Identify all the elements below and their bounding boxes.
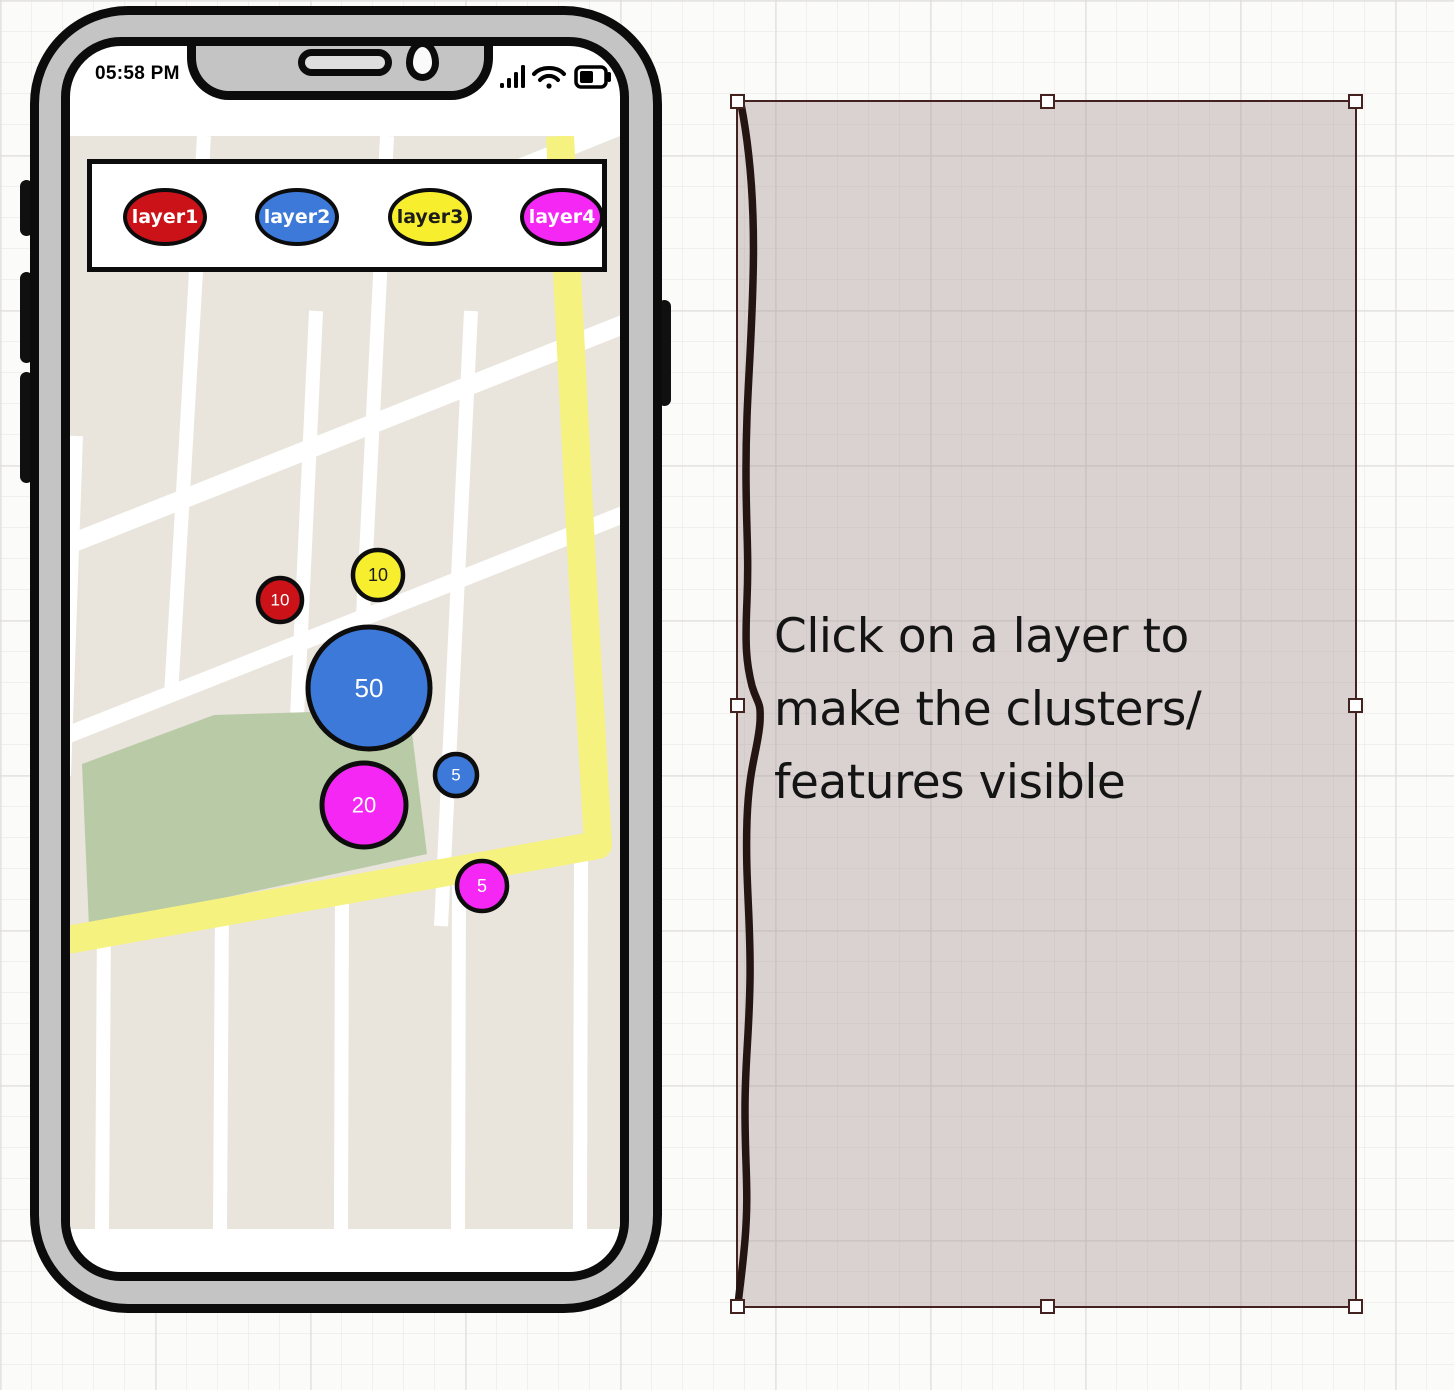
cluster-marker-blue-5[interactable]: 5	[435, 754, 477, 796]
layer2-button[interactable]: layer2	[255, 188, 339, 246]
wifi-icon	[534, 68, 564, 89]
annotation-text: Click on a layer to make the clusters/ f…	[774, 600, 1349, 819]
status-bar-icons	[500, 59, 612, 93]
cluster-value: 5	[477, 876, 487, 896]
cluster-marker-blue-50[interactable]: 50	[308, 627, 430, 749]
annotation-line-3: features visible	[774, 746, 1349, 819]
cellular-signal-icon	[500, 65, 525, 88]
selection-handle-middle-left[interactable]	[730, 698, 745, 713]
cluster-value: 50	[355, 673, 384, 703]
map-canvas: 10 10 50 5 20 5	[70, 136, 620, 1229]
layer4-button[interactable]: layer4	[520, 188, 604, 246]
selection-handle-top-middle[interactable]	[1040, 94, 1055, 109]
selection-handle-top-left[interactable]	[730, 94, 745, 109]
status-bar-time: 05:58 PM	[95, 63, 180, 85]
phone-screen: 05:58 PM	[61, 37, 629, 1281]
annotation-line-1: Click on a layer to	[774, 600, 1349, 673]
cluster-marker-magenta-20[interactable]: 20	[322, 763, 406, 847]
annotation-panel[interactable]: Click on a layer to make the clusters/ f…	[736, 100, 1357, 1308]
annotation-line-2: make the clusters/	[774, 673, 1349, 746]
layer-selector-bar: layer1 layer2 layer3 layer4	[87, 159, 607, 272]
cluster-marker-yellow-10[interactable]: 10	[353, 550, 403, 600]
selection-handle-middle-right[interactable]	[1348, 698, 1363, 713]
cluster-marker-magenta-5[interactable]: 5	[457, 861, 507, 911]
phone-frame: 05:58 PM	[30, 6, 662, 1313]
layer1-button[interactable]: layer1	[123, 188, 207, 246]
phone-camera	[406, 40, 439, 81]
phone-speaker	[298, 49, 392, 76]
cluster-marker-red-10[interactable]: 10	[258, 578, 302, 622]
cluster-value: 10	[368, 565, 388, 585]
cluster-value: 10	[271, 591, 290, 610]
selection-handle-top-right[interactable]	[1348, 94, 1363, 109]
selection-handle-bottom-middle[interactable]	[1040, 1299, 1055, 1314]
cluster-value: 20	[352, 793, 376, 818]
battery-icon	[576, 67, 611, 87]
selection-handle-bottom-right[interactable]	[1348, 1299, 1363, 1314]
selection-handle-bottom-left[interactable]	[730, 1299, 745, 1314]
layer3-button[interactable]: layer3	[388, 188, 472, 246]
design-canvas: { "device": { "time": "05:58 PM", "statu…	[0, 0, 1454, 1390]
cluster-value: 5	[451, 766, 460, 785]
